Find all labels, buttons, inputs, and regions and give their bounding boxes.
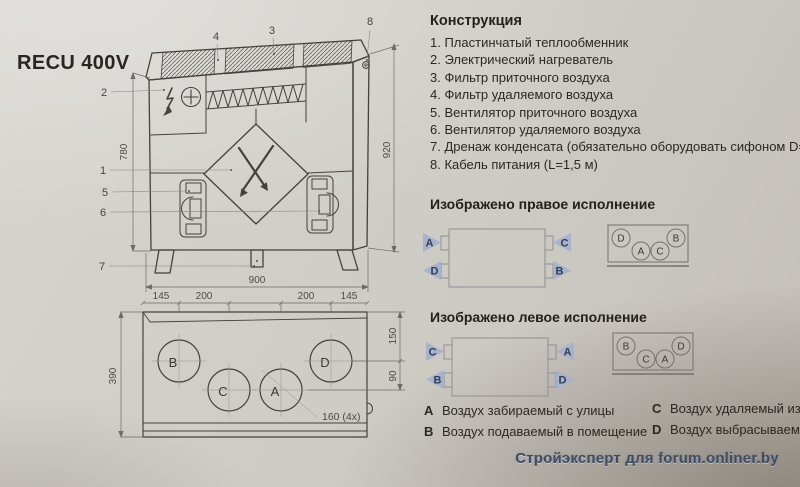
- legend-text-a: Воздух забираемый с улицы: [442, 403, 614, 418]
- construction-item-3: 3. Фильтр приточного воздуха: [430, 69, 798, 86]
- legend-key-c: C: [652, 401, 670, 416]
- unit-outline: [449, 229, 545, 287]
- port-letter-d: D: [320, 355, 329, 370]
- legend-column-left: A Воздух забираемый с улицы B Воздух под…: [424, 403, 647, 445]
- electric-cell: [151, 76, 206, 136]
- dim-390-label: 390: [108, 367, 119, 384]
- callout-5: 5: [102, 187, 108, 199]
- dim-780-label: 780: [119, 143, 130, 160]
- port-stubs: [444, 345, 556, 387]
- callout-2: 2: [101, 87, 107, 99]
- construction-item-6: 6. Вентилятор удаляемого воздуха: [430, 121, 798, 138]
- dim-900-label: 900: [249, 275, 266, 286]
- left-top-port-4: D: [677, 342, 684, 353]
- right-version-top-diagram: D A C B: [604, 221, 696, 271]
- left-side-bottom-left-letter: B: [434, 375, 442, 387]
- legend-key-b: B: [424, 424, 442, 439]
- right-side-bottom-right-letter: B: [556, 266, 564, 278]
- left-version-title: Изображено левое исполнение: [430, 309, 647, 325]
- drain-bump: [367, 403, 373, 414]
- heater-element: [206, 84, 306, 109]
- construction-title: Конструкция: [430, 13, 798, 29]
- left-top-port-2: C: [642, 355, 649, 366]
- flow-arrow-icons: [423, 233, 571, 280]
- crossflow-arrows-icon: [239, 146, 273, 197]
- dim-150-label: 150: [388, 327, 399, 344]
- right-side-top-right-letter: C: [561, 238, 569, 250]
- plus-circle-icon: [182, 88, 201, 107]
- legend-text-b: Воздух подаваемый в помещение: [442, 424, 647, 439]
- legend-row-c: C Воздух удаляемый из поме: [652, 401, 800, 416]
- left-version-side-diagram: C B A D: [418, 330, 588, 402]
- unit-outline: [452, 338, 548, 396]
- front-view-dimensions: [130, 43, 399, 292]
- right-top-port-3: C: [656, 247, 663, 258]
- left-side-top-right-letter: A: [564, 347, 572, 359]
- dim-90-label: 90: [388, 370, 399, 382]
- left-version-top-diagram: B C A D: [609, 329, 701, 379]
- callout-6: 6: [100, 207, 106, 219]
- top-view-dim-labels: 145 200 200 145 390 150 90: [108, 291, 399, 384]
- left-fan-icon: [180, 180, 206, 237]
- construction-section: Конструкция 1. Пластинчатый теплообменни…: [430, 13, 798, 173]
- dim-200-right: 200: [298, 291, 315, 302]
- callout-8: 8: [367, 16, 373, 28]
- right-side-bottom-left-letter: D: [431, 266, 439, 278]
- construction-item-7: 7. Дренаж конденсата (обязательно оборуд…: [430, 138, 798, 155]
- right-fan-icon: [307, 176, 339, 233]
- construction-item-4: 4. Фильтр удаляемого воздуха: [430, 86, 798, 103]
- technical-drawing: 2 1 5 6 7 4 3 8 780 920 900: [0, 0, 420, 487]
- hole-size-note: 160 (4x): [322, 411, 361, 423]
- exchanger-connectors: [151, 171, 353, 173]
- lightning-icon: [163, 88, 173, 116]
- dim-920-label: 920: [382, 141, 393, 158]
- flow-arrow-icons: [426, 342, 574, 389]
- dim-145-right: 145: [341, 291, 358, 302]
- watermark: Стройэксперт для forum.onliner.by: [492, 450, 800, 467]
- legend-row-d: D Воздух выбрасываемый н: [652, 422, 800, 437]
- legend-column-right: C Воздух удаляемый из поме D Воздух выбр…: [652, 401, 800, 443]
- port-letter-b: B: [169, 355, 178, 370]
- legend-row-a: A Воздух забираемый с улицы: [424, 403, 647, 418]
- right-top-port-1: D: [617, 234, 624, 245]
- construction-item-5: 5. Вентилятор приточного воздуха: [430, 104, 798, 121]
- callout-3: 3: [269, 25, 275, 37]
- port-stubs: [441, 236, 553, 278]
- left-side-bottom-right-letter: D: [559, 375, 567, 387]
- manual-page: RECU 400V: [0, 0, 800, 487]
- callout-7: 7: [99, 261, 105, 273]
- callout-4: 4: [213, 31, 219, 43]
- right-top-port-4: B: [673, 234, 680, 245]
- unit-side-face: [353, 56, 369, 250]
- right-side-top-left-letter: A: [426, 238, 434, 250]
- dim-200-left: 200: [196, 291, 213, 302]
- legend-text-c: Воздух удаляемый из поме: [670, 401, 800, 416]
- right-version-title: Изображено правое исполнение: [430, 196, 655, 212]
- construction-item-8: 8. Кабель питания (L=1,5 м): [430, 156, 798, 173]
- right-version-side-diagram: A D C B: [415, 221, 585, 293]
- port-letter-a: A: [271, 384, 280, 399]
- spigot-crosshairs: [152, 334, 358, 418]
- legend-row-b: B Воздух подаваемый в помещение: [424, 424, 647, 439]
- left-side-top-left-letter: C: [429, 347, 437, 359]
- top-view-bottom-edge: [143, 423, 367, 431]
- callout-1: 1: [100, 165, 106, 177]
- front-view-drawing: [146, 40, 369, 273]
- dim-145-left: 145: [153, 291, 170, 302]
- construction-item-2: 2. Электрический нагреватель: [430, 51, 798, 68]
- legend-text-d: Воздух выбрасываемый н: [670, 422, 800, 437]
- spigot-circles: [158, 340, 352, 411]
- right-top-port-2: A: [638, 247, 645, 258]
- legend-key-d: D: [652, 422, 670, 437]
- legend-key-a: A: [424, 403, 442, 418]
- construction-item-1: 1. Пластинчатый теплообменник: [430, 34, 798, 51]
- left-top-port-3: A: [662, 355, 669, 366]
- panel-divider-right: [256, 67, 306, 124]
- port-letter-c: C: [218, 384, 227, 399]
- filter-slot-hatching: [161, 41, 352, 79]
- left-top-port-1: B: [623, 342, 630, 353]
- top-view-lid-edge: [143, 312, 367, 322]
